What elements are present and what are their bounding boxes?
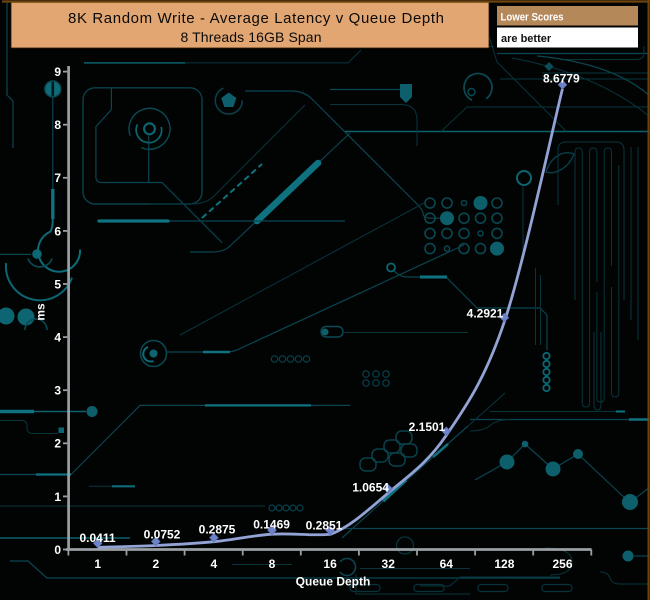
svg-text:6: 6: [54, 224, 61, 238]
svg-text:8K Random Write - Average Late: 8K Random Write - Average Latency v Queu…: [68, 10, 444, 27]
svg-text:0.0752: 0.0752: [144, 528, 181, 542]
svg-text:7: 7: [54, 171, 61, 185]
svg-text:0.2851: 0.2851: [306, 519, 343, 533]
svg-text:4.2921: 4.2921: [467, 307, 504, 321]
svg-text:32: 32: [382, 557, 396, 571]
svg-text:2: 2: [152, 557, 159, 571]
svg-text:0.0411: 0.0411: [79, 531, 115, 545]
svg-text:0.1469: 0.1469: [253, 518, 290, 532]
svg-text:9: 9: [54, 65, 61, 79]
svg-text:2.1501: 2.1501: [409, 420, 446, 434]
svg-text:8.6779: 8.6779: [543, 72, 580, 86]
svg-text:are better: are better: [501, 33, 552, 45]
svg-text:1.0654: 1.0654: [352, 481, 389, 495]
svg-text:4: 4: [54, 331, 61, 345]
svg-text:Lower Scores: Lower Scores: [501, 12, 564, 24]
svg-text:256: 256: [552, 557, 572, 571]
svg-text:0.2875: 0.2875: [199, 523, 236, 537]
svg-text:3: 3: [54, 384, 61, 398]
svg-text:128: 128: [494, 557, 514, 571]
svg-text:8: 8: [269, 557, 276, 571]
svg-text:5: 5: [54, 277, 61, 291]
svg-text:16: 16: [323, 557, 337, 571]
svg-text:64: 64: [440, 557, 454, 571]
svg-text:1: 1: [54, 490, 61, 504]
svg-text:8 Threads 16GB Span: 8 Threads 16GB Span: [181, 29, 322, 45]
svg-text:2: 2: [54, 437, 61, 451]
svg-text:4: 4: [211, 557, 218, 571]
svg-text:8: 8: [54, 118, 61, 132]
svg-text:0: 0: [54, 543, 61, 557]
svg-text:ms: ms: [34, 303, 48, 321]
svg-text:1: 1: [94, 557, 101, 571]
svg-text:Queue Depth: Queue Depth: [296, 575, 371, 589]
